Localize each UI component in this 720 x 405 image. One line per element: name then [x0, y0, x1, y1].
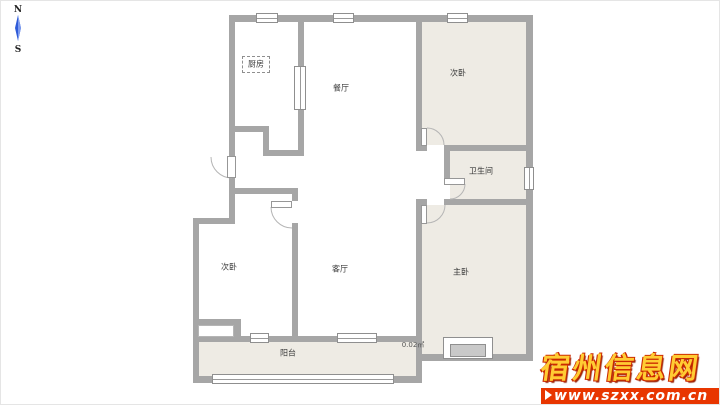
wall-bedroom-sw-top [193, 218, 235, 224]
watermark-site-name: 宿州信息网 [538, 345, 720, 387]
closet-nook [198, 325, 234, 337]
wall-living-bedroom-divider-lower [292, 223, 298, 336]
watermark-banner: www.szxx.com.cn [541, 388, 720, 405]
room-label-dining: 餐厅 [333, 83, 349, 94]
room-label-bedroom-southwest: 次卧 [221, 262, 237, 273]
window-top-dining [333, 13, 354, 23]
room-fill-bedroom-northeast [422, 22, 526, 145]
entry-door-panel [227, 156, 236, 178]
wall-closet-stub [234, 319, 241, 338]
window-balcony-long [212, 374, 394, 384]
compass-needle-icon [7, 15, 29, 41]
window-bathroom-right [524, 167, 534, 190]
wall-bathroom-left [444, 151, 450, 178]
wall-kitchen-step-h2 [263, 150, 304, 156]
master-door-panel [421, 205, 427, 224]
room-label-living: 客厅 [332, 264, 348, 275]
watermark-arrow-icon [545, 390, 552, 400]
area-note-label: 0.02㎡ [402, 340, 425, 350]
room-fill-master-bedroom [422, 205, 526, 354]
wall-hall-bottom [234, 188, 298, 194]
watermark-url: www.szxx.com.cn [554, 388, 708, 404]
window-balcony-living [337, 333, 377, 343]
room-label-bathroom: 卫生间 [469, 166, 493, 177]
window-top-kitchen [256, 13, 278, 23]
room-label-master-bedroom: 主卧 [453, 267, 469, 278]
compass-north-label: N [7, 5, 29, 15]
room-label-balcony: 阳台 [280, 348, 296, 359]
compass: N S [7, 5, 29, 55]
bedroom-sw-door-arc [271, 207, 292, 228]
floorplan-page: N S [0, 0, 720, 405]
wall-living-bedroom-divider-upper [292, 188, 298, 201]
room-fill-balcony [199, 342, 416, 376]
wall-entry-left-lower [229, 177, 235, 223]
sliding-door-kitchen [294, 66, 306, 110]
wall-kitchen-left [229, 15, 235, 156]
compass-south-label: S [7, 45, 29, 55]
window-top-bedroom-ne [447, 13, 468, 23]
room-label-kitchen: 厨房 [248, 59, 264, 70]
wall-left-outer [193, 218, 199, 383]
window-balcony-small [250, 333, 269, 343]
watermark: 宿州信息网 www.szxx.com.cn [541, 345, 720, 405]
room-label-bedroom-northeast: 次卧 [450, 68, 466, 79]
bathroom-door-panel [444, 178, 465, 185]
wall-bedroom-ne-bottom-right [444, 145, 533, 151]
bay-window-master-inner [450, 344, 486, 357]
wall-master-top-right [444, 199, 533, 205]
bedroom-sw-door-panel [271, 201, 292, 208]
bedroom-ne-door-panel [421, 128, 427, 146]
